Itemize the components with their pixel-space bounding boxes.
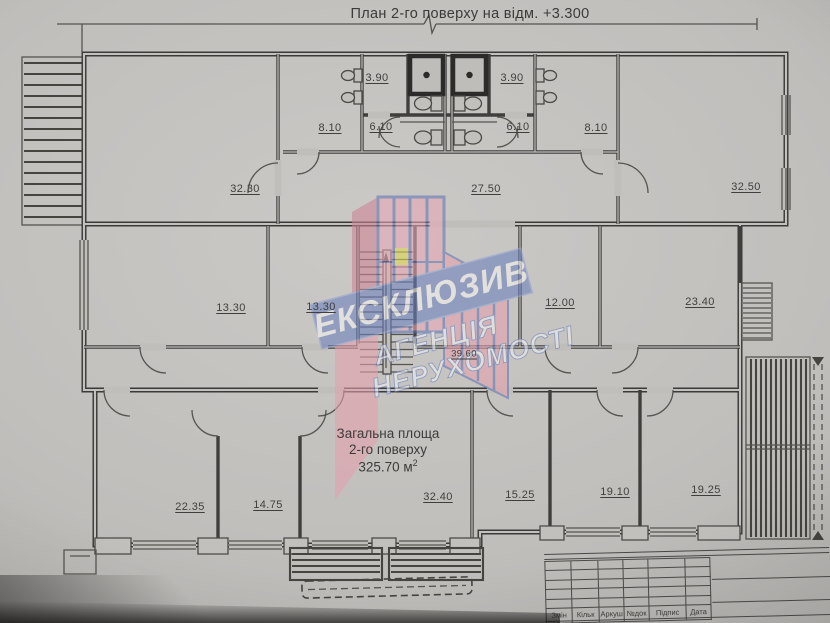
- step-bottom-left: [64, 550, 96, 574]
- room-area-label: 13.30: [216, 302, 246, 314]
- watermark-window-highlight: [395, 248, 408, 265]
- room-area-label: 14.75: [253, 499, 283, 511]
- room-area-label: 8.10: [584, 122, 607, 134]
- total-area-line1: Загальна площа: [337, 426, 440, 442]
- corridor-area-label: 39.60: [451, 349, 477, 360]
- room-area-label: 13.30: [306, 301, 336, 313]
- wall-pilasters: [95, 526, 740, 554]
- room-area-label: 12.00: [545, 297, 575, 309]
- total-area-value: 325.70 м2: [337, 458, 440, 476]
- plan-title: План 2-го поверху на відм. +3.300: [350, 6, 589, 22]
- room-area-label: 19.10: [600, 486, 630, 498]
- ventilation-shafts: [410, 56, 486, 94]
- floorplan-photo: ЕКСКЛЮЗИВ АГЕНЦІЯ НЕРУХОМОСТІ План 2-го …: [0, 0, 830, 623]
- room-area-label: 6.10: [506, 121, 529, 133]
- total-area-line2: 2-го поверху: [337, 442, 440, 458]
- room-area-label: 32.40: [423, 491, 453, 503]
- total-area-superscript: 2: [413, 458, 418, 468]
- room-area-label: 27.50: [471, 183, 501, 195]
- room-area-label: 6.10: [369, 121, 392, 133]
- total-area-note: Загальна площа 2-го поверху 325.70 м2: [337, 426, 440, 476]
- room-area-label: 3.90: [365, 72, 388, 84]
- balcony-hatch-bottom: [290, 548, 483, 598]
- room-area-label: 32.50: [731, 181, 761, 193]
- floorplan-drawing: ЕКСКЛЮЗИВ АГЕНЦІЯ НЕРУХОМОСТІ: [0, 0, 830, 623]
- stair-hatch-right-small: [742, 283, 772, 340]
- room-area-label: 8.10: [318, 122, 341, 134]
- room-area-label: 3.90: [500, 72, 523, 84]
- title-block: Змін Кільк Аркуш №док Підпис Дата: [544, 547, 830, 623]
- room-area-label: 23.40: [685, 296, 715, 308]
- title-block-grid: Змін Кільк Аркуш №док Підпис Дата: [544, 557, 711, 623]
- room-area-label: 15.25: [505, 489, 535, 501]
- stair-hatch-top-left: [22, 57, 84, 225]
- room-area-label: 22.35: [175, 501, 205, 513]
- title-block-line: [712, 576, 830, 580]
- room-area-label: 19.25: [691, 484, 721, 496]
- stair-hatch-right-large: [746, 357, 824, 540]
- room-area-label: 32.30: [230, 183, 260, 195]
- title-block-line: [712, 599, 830, 603]
